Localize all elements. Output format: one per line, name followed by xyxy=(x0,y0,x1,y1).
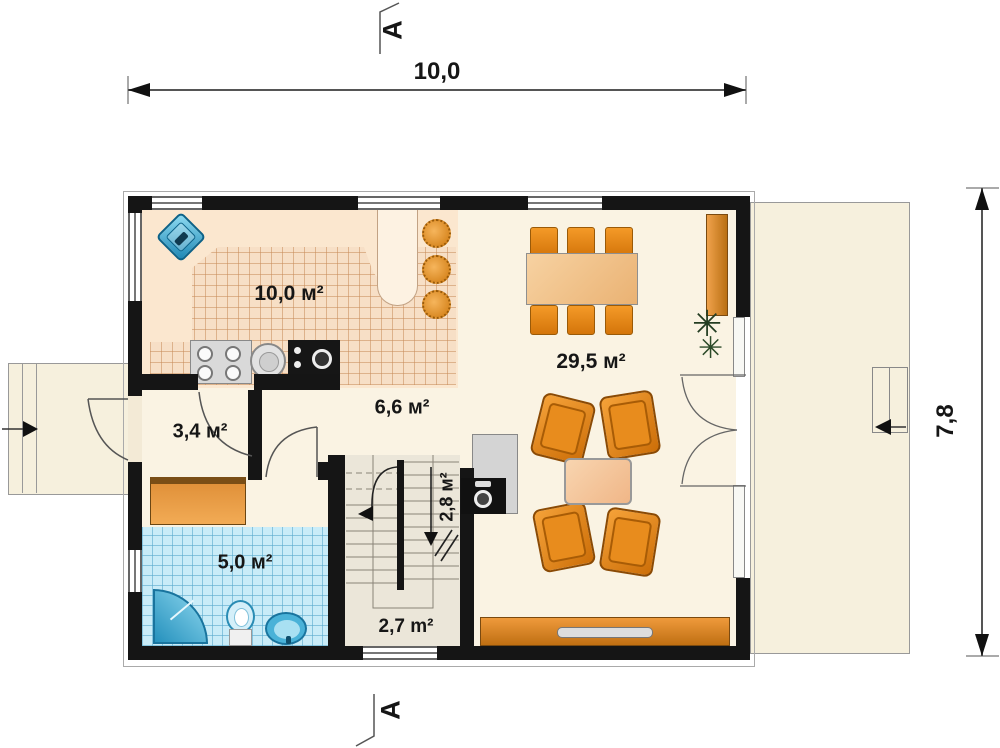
glazed-wall xyxy=(733,485,745,578)
bar-stool xyxy=(422,290,451,319)
coffee-table xyxy=(564,458,632,505)
entry-porch xyxy=(8,363,130,495)
window xyxy=(363,646,437,660)
washbasin xyxy=(265,612,307,645)
armchair xyxy=(598,506,661,578)
hallway-area-label: 6,6 м² xyxy=(375,397,430,420)
wardrobe xyxy=(150,477,246,525)
living-dining-area-label: 29,5 м² xyxy=(556,350,625,374)
glazed-wall xyxy=(733,317,745,377)
bathroom-area-label: 5,0 м² xyxy=(218,552,273,575)
kitchen-area-label: 10,0 м² xyxy=(254,282,323,306)
dining-table xyxy=(526,253,638,305)
sideboard-handle xyxy=(557,627,653,638)
wall-bath-jamb xyxy=(318,462,328,480)
porch-step-line xyxy=(36,363,37,493)
floor-plan: ✳ ✳ xyxy=(0,0,1000,748)
dining-chair xyxy=(605,305,633,335)
window xyxy=(128,550,142,592)
wall-bottom xyxy=(128,646,750,660)
stair-stringer xyxy=(397,460,404,590)
porch-step-line xyxy=(22,363,23,493)
section-marker-bottom: A xyxy=(376,700,407,720)
dimension-height xyxy=(966,188,999,656)
wall-kitchen-a xyxy=(142,374,198,390)
tall-cabinet xyxy=(706,214,728,316)
dining-chair xyxy=(567,305,595,335)
dimension-width-label: 10,0 xyxy=(414,58,461,86)
wall-entry xyxy=(248,390,262,480)
bar-counter xyxy=(377,210,418,306)
stove xyxy=(190,340,252,384)
armchair xyxy=(598,389,661,461)
sideboard xyxy=(480,617,730,646)
window xyxy=(152,196,202,210)
staircase-area-label: 2,8 м² xyxy=(437,472,458,521)
toilet-tank xyxy=(229,629,252,646)
dining-chair xyxy=(530,305,558,335)
window xyxy=(528,196,602,210)
window xyxy=(128,213,142,301)
wall-kitchen-b xyxy=(254,374,340,390)
bar-stool xyxy=(422,219,451,248)
section-marker-top: A xyxy=(378,20,409,40)
terrace-steps xyxy=(872,367,908,433)
section-line-bottom xyxy=(356,694,374,746)
bar-stool xyxy=(422,255,451,284)
wall-stair-left xyxy=(328,455,345,646)
fireplace-front xyxy=(461,478,506,514)
window xyxy=(358,196,440,210)
plant-icon: ✳ xyxy=(698,334,723,364)
front-door-opening xyxy=(128,396,142,462)
wall-right-lower xyxy=(736,578,750,660)
staircase-lower-area-label: 2,7 m² xyxy=(379,616,434,638)
entry-area-label: 3,4 м² xyxy=(173,421,228,444)
terrace-step-line xyxy=(889,367,890,433)
wall-right-upper xyxy=(736,196,750,317)
dimension-height-label: 7,8 xyxy=(932,404,960,437)
